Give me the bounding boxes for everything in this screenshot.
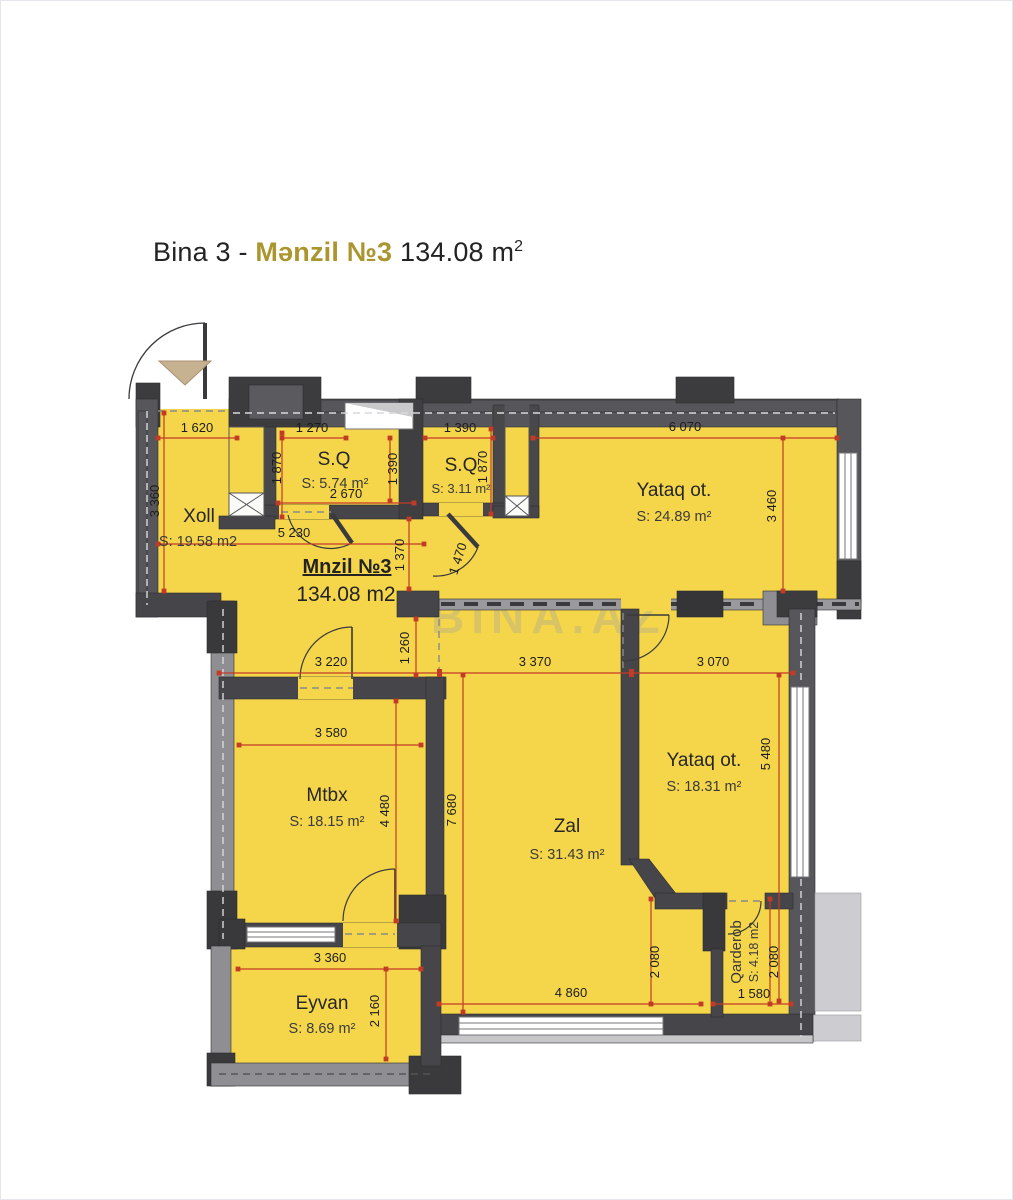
dim-label: 1 390 [385,453,400,486]
dim-label: 3 360 [147,485,162,518]
room-area-zal: S: 31.43 m² [530,847,605,863]
window-mtbx-eyvan [247,927,335,942]
dim-label: 3 460 [764,490,779,523]
dim-label: 1 270 [296,420,329,435]
room-area-yataq1: S: 24.89 m² [637,509,712,525]
room-name-sq1: S.Q [318,449,351,470]
dim-label: 1 620 [181,420,214,435]
dim-label: 1 870 [269,452,284,485]
dim-label: 5 230 [278,525,311,540]
room-name-yataq2: Yataq ot. [667,750,742,771]
niche-sq1 [345,403,413,429]
dim-label: 2 160 [367,995,382,1028]
floor-plan-canvas: BINA.AZ [1,1,1013,1200]
room-area-sq1: S: 5.74 m² [302,476,369,492]
dim-label: 3 070 [697,654,730,669]
dim-label: 2 080 [766,946,781,979]
window-zal [459,1017,663,1035]
room-name-qarderob: Qarderob [728,920,745,983]
room-name-xoll: Xoll [183,506,215,527]
dim-label: 1 580 [738,986,771,1001]
room-area-xoll: S: 19.58 m2 [159,534,237,550]
room-name-yataq1: Yataq ot. [637,480,712,501]
room-name-eyvan: Eyvan [296,993,349,1014]
dim-label: 4 860 [555,985,588,1000]
room-area-sq2: S: 3.11 m² [431,481,491,496]
room-name-zal: Zal [554,816,580,837]
dim-label: 3 220 [315,654,348,669]
dim-label: 4 480 [377,795,392,828]
room-area-eyvan: S: 8.69 m² [289,1021,356,1037]
unit-label-name: Mnzil №3 [303,556,392,578]
floor-plan-svg: BINA.AZ [1,1,1013,1200]
room-area-mtbx: S: 18.15 m² [290,814,365,830]
dim-label: 3 370 [519,654,552,669]
window-yataq2 [791,687,809,877]
dim-label: 3 360 [314,950,347,965]
dim-label: 7 680 [444,794,459,827]
dim-label: 3 580 [315,725,348,740]
room-area-qarderob: S: 4.18 m2 [747,922,761,982]
dim-label: 1 390 [444,420,477,435]
unit-label-area: 134.08 m2 [296,583,395,606]
dim-label: 6 070 [669,419,702,434]
dim-label: 1 370 [392,539,407,572]
room-name-sq2: S.Q [445,455,478,476]
dim-label: 1 260 [397,632,412,665]
window-yataq1 [839,453,857,559]
floor-plan-page: Bina 3 - Mənzil №3 134.08 m2 [0,0,1013,1200]
room-name-mtbx: Mtbx [306,785,348,806]
dim-label: 5 480 [758,738,773,771]
room-area-yataq2: S: 18.31 m² [667,779,742,795]
dim-label: 2 080 [647,946,662,979]
